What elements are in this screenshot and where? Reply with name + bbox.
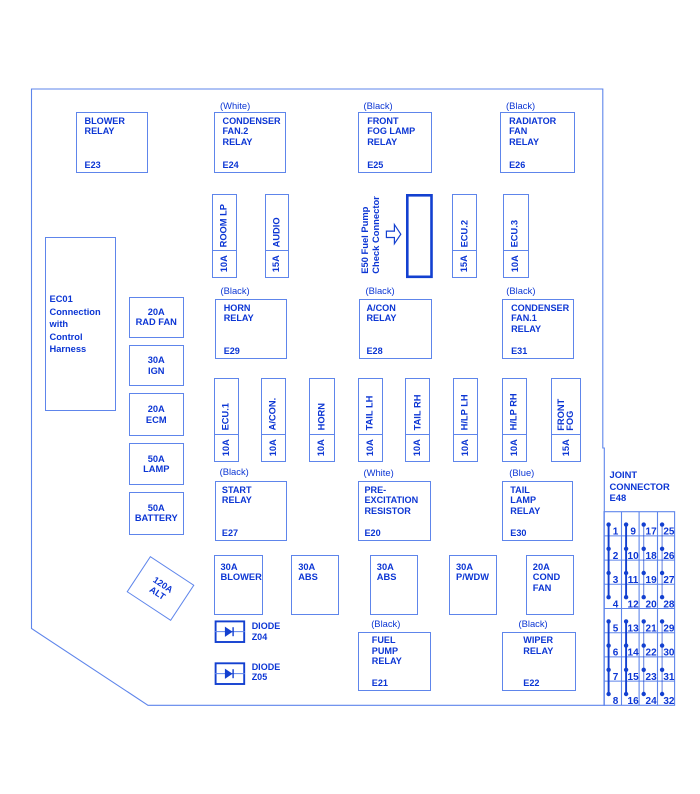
svg-text:6: 6	[613, 648, 619, 659]
svg-text:22: 22	[646, 648, 658, 659]
svg-text:24: 24	[646, 696, 658, 707]
svg-text:27: 27	[663, 575, 675, 586]
svg-text:14: 14	[628, 648, 640, 659]
svg-text:7: 7	[613, 672, 619, 683]
svg-text:4: 4	[613, 599, 619, 610]
svg-text:31: 31	[663, 672, 675, 683]
svg-text:1: 1	[613, 527, 619, 538]
svg-text:5: 5	[613, 624, 619, 635]
svg-text:12: 12	[628, 599, 640, 610]
svg-text:29: 29	[663, 624, 675, 635]
svg-text:32: 32	[663, 696, 675, 707]
svg-text:21: 21	[646, 624, 658, 635]
svg-text:13: 13	[628, 624, 640, 635]
svg-text:11: 11	[628, 575, 639, 586]
svg-text:16: 16	[628, 696, 640, 707]
svg-text:10: 10	[628, 551, 640, 562]
svg-text:18: 18	[646, 551, 658, 562]
svg-text:28: 28	[663, 599, 675, 610]
svg-text:19: 19	[646, 575, 658, 586]
svg-text:23: 23	[646, 672, 658, 683]
svg-text:25: 25	[663, 527, 675, 538]
svg-text:2: 2	[613, 551, 619, 562]
svg-text:8: 8	[613, 696, 619, 707]
svg-text:26: 26	[663, 551, 675, 562]
svg-text:17: 17	[646, 527, 658, 538]
svg-text:20: 20	[646, 599, 658, 610]
svg-text:30: 30	[663, 648, 675, 659]
svg-text:3: 3	[613, 575, 619, 586]
svg-text:15: 15	[628, 672, 640, 683]
svg-text:9: 9	[630, 527, 636, 538]
